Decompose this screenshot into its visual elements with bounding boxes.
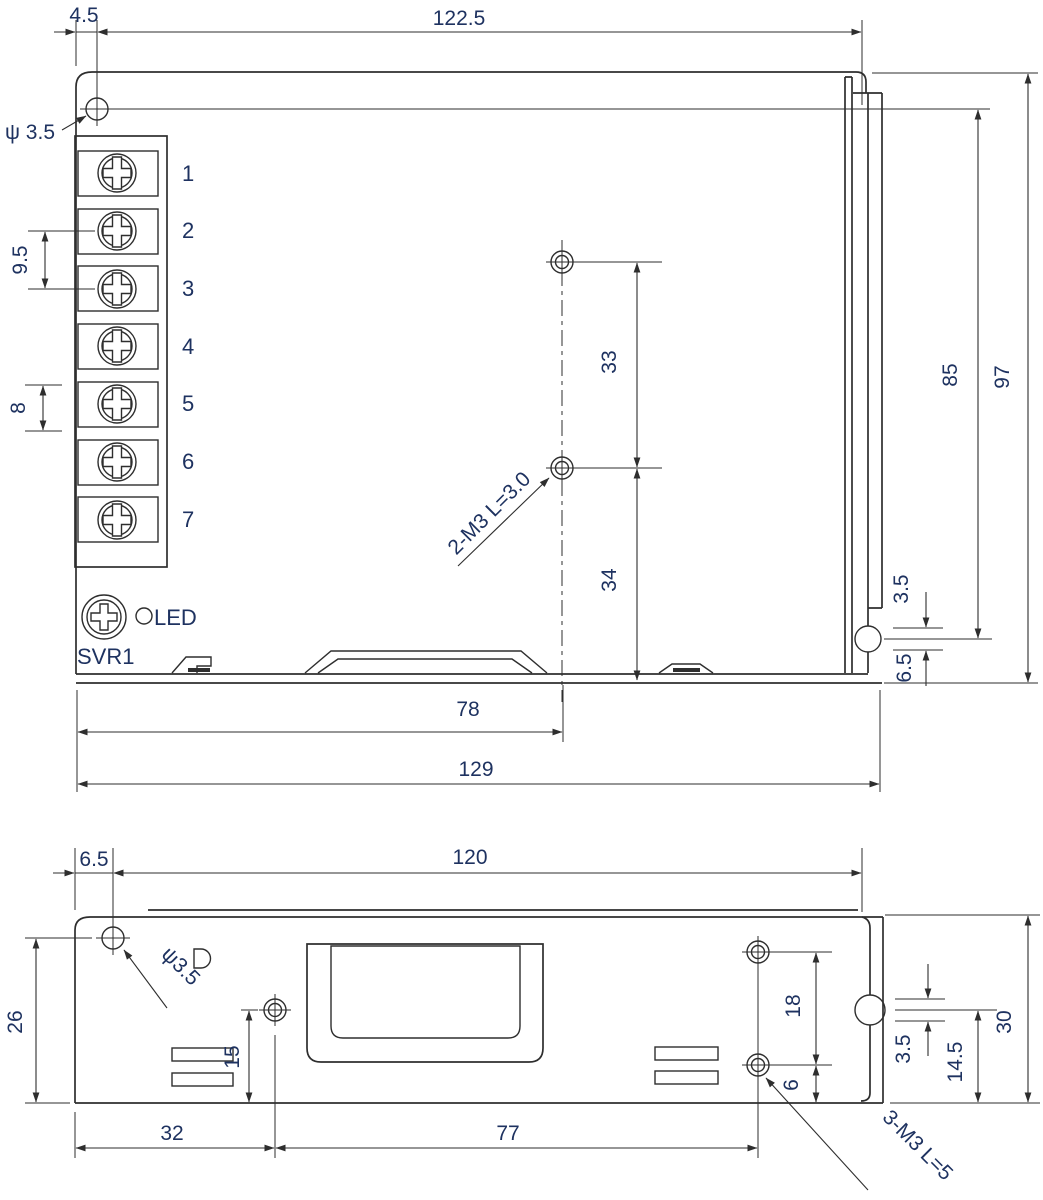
vent-slot	[655, 1047, 718, 1060]
dim-18: 18	[782, 994, 805, 1017]
top-view-case-outline	[76, 72, 882, 683]
dim-15: 15	[221, 1045, 244, 1068]
dim-phi-3-5-end: ψ3.5	[157, 943, 204, 990]
svr1-label: SVR1	[77, 644, 134, 669]
vent-bulge-outer	[305, 651, 547, 673]
mechanical-drawing-page: 1 2 3 4 5 6 7 LED SVR1	[0, 0, 1043, 1200]
led-label: LED	[154, 605, 197, 630]
end-view-dimensions: 6.5 120 ψ3.5 26 15 32 77 18 6	[4, 846, 1040, 1190]
connector-opening-inner	[331, 946, 520, 1038]
dim-78: 78	[456, 698, 479, 721]
dim-32: 32	[160, 1122, 183, 1145]
drawing-canvas: 1 2 3 4 5 6 7 LED SVR1	[0, 0, 1043, 1200]
terminal-label-7: 7	[182, 507, 194, 532]
vent-bulge-inner	[318, 659, 532, 673]
top-view: 1 2 3 4 5 6 7 LED SVR1	[5, 4, 1038, 792]
terminal-screw[interactable]	[98, 443, 136, 481]
dim-77: 77	[496, 1122, 519, 1145]
terminal-label-6: 6	[182, 449, 194, 474]
vent-slot	[172, 1073, 233, 1086]
terminal-block: 1 2 3 4 5 6 7	[75, 136, 194, 567]
dim-6: 6	[780, 1079, 803, 1091]
dim-129: 129	[458, 758, 493, 781]
terminal-screw[interactable]	[98, 501, 136, 539]
dim-26: 26	[4, 1010, 27, 1033]
dim-97: 97	[991, 365, 1014, 388]
dim-122-5: 122.5	[433, 7, 486, 30]
end-view: 6.5 120 ψ3.5 26 15 32 77 18 6	[4, 846, 1040, 1190]
dim-3-5-end: 3.5	[892, 1034, 915, 1063]
terminal-screw[interactable]	[98, 327, 136, 365]
dim-9-5: 9.5	[9, 245, 32, 274]
dim-8: 8	[7, 402, 30, 414]
dim-4-5: 4.5	[69, 4, 98, 27]
terminal-label-1: 1	[182, 161, 194, 186]
dim-phi-3-5: ψ 3.5	[5, 121, 55, 144]
side-mounting-hole	[855, 626, 881, 652]
terminal-label-5: 5	[182, 391, 194, 416]
dim-85: 85	[939, 363, 962, 386]
dim-120: 120	[452, 846, 487, 869]
stamped-tabs	[172, 651, 713, 673]
terminal-screw[interactable]	[98, 154, 136, 192]
note-2-m3: 2-M3 L=3.0	[444, 468, 536, 560]
dim-34: 34	[598, 568, 621, 592]
side-mounting-hole-end	[855, 995, 885, 1025]
dim-3-5-side: 3.5	[890, 574, 913, 603]
dim-33: 33	[598, 350, 621, 373]
connector-opening-outer	[307, 944, 543, 1062]
terminal-screw[interactable]	[98, 270, 136, 308]
dim-14-5: 14.5	[944, 1042, 967, 1083]
end-view-features	[96, 921, 774, 1086]
dim-6-5-side: 6.5	[893, 653, 916, 682]
terminal-screw[interactable]	[98, 212, 136, 250]
note-3-m3: 3-M3 L=5	[878, 1106, 957, 1185]
led-indicator	[136, 608, 152, 624]
dim-30: 30	[993, 1010, 1016, 1033]
terminal-label-3: 3	[182, 276, 194, 301]
dim-6-5-end: 6.5	[79, 848, 108, 871]
terminal-screw[interactable]	[98, 385, 136, 423]
terminal-label-4: 4	[182, 334, 194, 359]
svr-led-group: LED SVR1	[77, 595, 197, 669]
vent-slot	[655, 1071, 718, 1084]
terminal-label-2: 2	[182, 218, 194, 243]
